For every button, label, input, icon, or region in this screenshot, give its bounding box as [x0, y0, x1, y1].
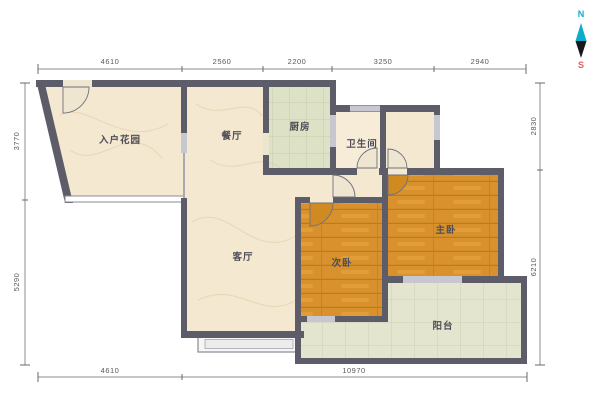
dim-top-4: 3250 [374, 57, 393, 66]
wall-segment [263, 168, 357, 175]
dim-left-2: 5290 [12, 273, 21, 292]
dim-left-1: 3770 [12, 132, 21, 151]
window [350, 106, 383, 112]
dim-right-1: 2830 [529, 117, 538, 136]
wall-segment [295, 358, 527, 364]
wall-segment [295, 197, 301, 322]
wall-segment [263, 80, 269, 133]
compass-south-label: S [578, 60, 584, 70]
wall-segment [295, 318, 301, 364]
compass-arrow-north [576, 23, 587, 41]
compass-arrow-south [576, 41, 587, 58]
window [434, 115, 440, 140]
dim-right-2: 6210 [529, 258, 538, 277]
bay-window [198, 336, 300, 352]
wall-segment [92, 80, 336, 87]
wall-segment [407, 168, 504, 175]
room-label-living: 客厅 [231, 251, 253, 263]
wall-segment [333, 105, 440, 112]
compass-north-label: N [578, 9, 585, 19]
room-label-second-bedroom: 次卧 [331, 257, 352, 269]
window [307, 316, 335, 322]
room-label-kitchen: 厨房 [289, 121, 310, 133]
window [330, 115, 336, 147]
floors [39, 83, 524, 361]
room-label-bathroom: 卫生间 [346, 138, 378, 150]
wall-segment [379, 168, 388, 175]
wall-segment [380, 105, 386, 168]
room-label-balcony: 阳台 [432, 320, 453, 332]
master-door-opening [388, 168, 407, 175]
wall-segment [181, 80, 187, 133]
dim-bottom-2: 10970 [342, 366, 365, 375]
floor-plan: 入户花园 餐厅 厨房 卫生间 客厅 次卧 主卧 阳台 4610 2560 220… [0, 0, 600, 403]
window [403, 276, 462, 283]
kitchen-door-opening [263, 133, 269, 155]
dim-top-3: 2200 [288, 57, 307, 66]
garden-glass-partition [65, 196, 184, 202]
room-label-entry-garden: 入户花园 [98, 134, 141, 146]
dim-top-5: 2940 [471, 57, 490, 66]
bathroom-door-opening [357, 168, 379, 175]
entry-door-opening [63, 80, 92, 87]
wall-segment [181, 198, 187, 338]
compass: N S [576, 9, 587, 70]
wall-thin-segment [183, 153, 185, 198]
wall-segment [333, 197, 388, 203]
dim-top-1: 4610 [101, 57, 120, 66]
wall-segment [521, 276, 527, 364]
wall-segment [498, 168, 504, 283]
window [181, 133, 187, 153]
bedroom2-door-opening [310, 197, 333, 203]
floor-plan-drawing: 入户花园 餐厅 厨房 卫生间 客厅 次卧 主卧 阳台 4610 2560 220… [0, 0, 600, 403]
wall-segment [181, 331, 304, 338]
dim-top-2: 2560 [213, 57, 232, 66]
room-label-master-bedroom: 主卧 [435, 224, 456, 236]
dim-bottom-1: 4610 [101, 366, 120, 375]
room-label-dining: 餐厅 [220, 130, 242, 142]
